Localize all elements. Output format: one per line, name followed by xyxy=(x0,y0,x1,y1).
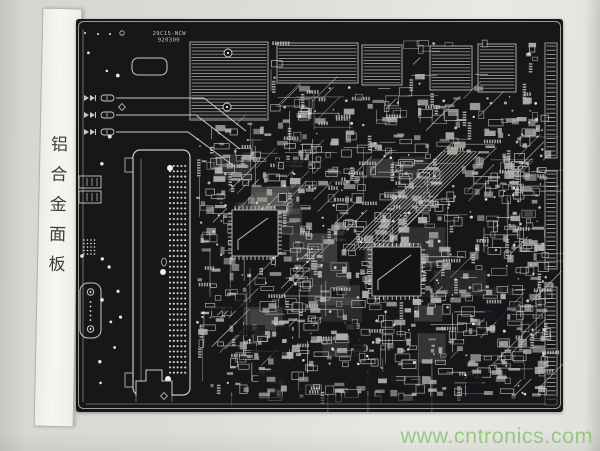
pcb-layout-photo: 铝 合 金 面 板 29C15-NCW920300 www.cntronics.… xyxy=(0,0,600,451)
watermark-text: www.cntronics.com xyxy=(401,424,594,449)
side-label-char: 面 xyxy=(49,227,66,244)
pcb-layout-drawing: 29C15-NCW920300 xyxy=(76,19,563,412)
side-label-char: 合 xyxy=(50,167,67,184)
svg-text:920300: 920300 xyxy=(158,38,180,44)
side-label-char: 金 xyxy=(50,197,67,214)
side-label-char: 板 xyxy=(48,257,65,274)
paper-shade-left xyxy=(0,0,26,451)
paper-shade-right xyxy=(584,0,600,451)
side-label-char: 铝 xyxy=(51,137,68,154)
pcb-board-print: 29C15-NCW920300 xyxy=(76,19,563,412)
svg-text:29C15-NCW: 29C15-NCW xyxy=(153,31,187,37)
